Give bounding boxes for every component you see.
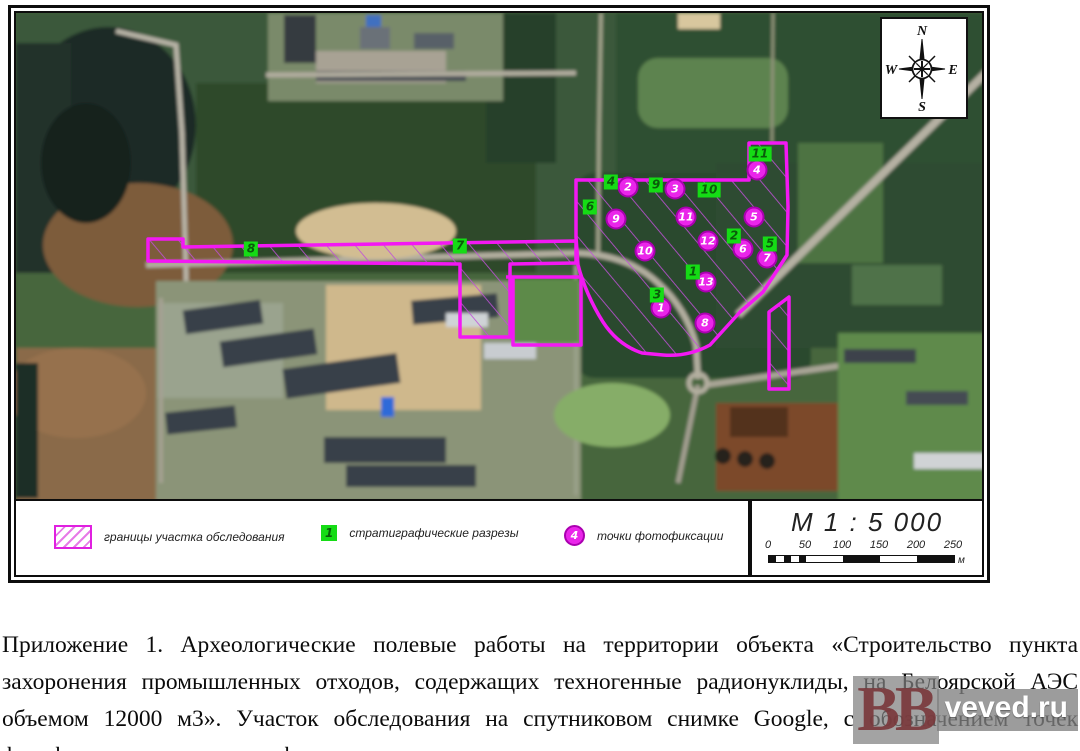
photo-point-marker: 8 (695, 313, 716, 334)
photo-point-marker: 11 (676, 207, 697, 228)
scale-tick-label: 50 (799, 539, 811, 551)
scale-bar-segment (791, 556, 798, 562)
photo-point-marker: 2 (618, 177, 639, 198)
stratigraphic-section-marker: 5 (763, 237, 777, 252)
stratigraphic-section-marker: 8 (244, 242, 258, 257)
scale-bar-segment (769, 556, 776, 562)
photo-point-marker: 12 (698, 231, 719, 252)
photo-point-marker: 9 (606, 209, 627, 230)
map-footer-band: границы участка обследования1стратиграфи… (16, 499, 982, 575)
scale-unit-label: м (958, 555, 965, 566)
stratigraphic-section-marker: 10 (698, 183, 721, 198)
scale-bar-segment (776, 556, 783, 562)
scale-box: М 1 : 5 000 050100150200250 м (750, 499, 982, 575)
site-watermark: BB veved.ru (853, 676, 1078, 744)
stratigraphic-section-marker: 3 (650, 288, 664, 303)
watermark-logo: BB (853, 676, 938, 744)
section-swatch: 1 (321, 525, 337, 541)
stratigraphic-section-marker: 9 (649, 178, 663, 193)
satellite-imagery (16, 13, 982, 499)
legend-item-label: границы участка обследования (104, 530, 285, 544)
photo-point-marker: 3 (665, 179, 686, 200)
scale-bar-segment (806, 556, 843, 562)
scale-tick-label: 150 (870, 539, 888, 551)
compass-east-label: E (947, 63, 957, 78)
compass-south-label: S (918, 100, 926, 113)
scale-tick-label: 250 (944, 539, 962, 551)
stratigraphic-section-marker: 2 (727, 229, 741, 244)
legend-item: границы участка обследования (54, 525, 285, 549)
scale-bar-segment (917, 556, 954, 562)
photo-point-marker: 4 (747, 160, 768, 181)
scale-bar-segment (843, 556, 880, 562)
compass-west-label: W (885, 63, 899, 78)
scale-tick-labels: 050100150200250 (768, 539, 954, 551)
hatched-area-swatch (54, 525, 92, 549)
scale-tick-label: 200 (907, 539, 925, 551)
legend-item-label: стратиграфические разрезы (349, 526, 518, 540)
stratigraphic-section-marker: 7 (453, 239, 467, 254)
legend-item-label: точки фотофиксации (597, 529, 723, 543)
document-page: 123456789101112131234567891011 N S W E (0, 0, 1080, 751)
scale-tick-label: 0 (765, 539, 771, 551)
scale-bar-segment (799, 556, 806, 562)
legend-item: 1стратиграфические разрезы (321, 525, 519, 541)
stratigraphic-section-marker: 6 (583, 200, 597, 215)
scale-bar-segment (784, 556, 791, 562)
legend-item: 4точки фотофиксации (564, 525, 723, 546)
photo-point-marker: 10 (635, 241, 656, 262)
compass-rose: N S W E (880, 17, 968, 119)
scale-title: М 1 : 5 000 (752, 507, 982, 538)
scale-tick-label: 100 (833, 539, 851, 551)
watermark-site-name: veved.ru (937, 689, 1078, 731)
photo-point-marker: 5 (744, 207, 765, 228)
scale-bar-segment (880, 556, 917, 562)
stratigraphic-section-marker: 1 (686, 265, 700, 280)
legend: границы участка обследования1стратиграфи… (16, 499, 750, 575)
compass-north-label: N (916, 24, 928, 39)
photo-point-swatch: 4 (564, 525, 585, 546)
map-figure: 123456789101112131234567891011 N S W E (8, 5, 990, 583)
satellite-map: 123456789101112131234567891011 N S W E (16, 13, 982, 499)
stratigraphic-section-marker: 11 (749, 147, 772, 162)
map-figure-frame: 123456789101112131234567891011 N S W E (14, 11, 984, 577)
scale-bar (768, 555, 955, 563)
stratigraphic-section-marker: 4 (604, 175, 618, 190)
